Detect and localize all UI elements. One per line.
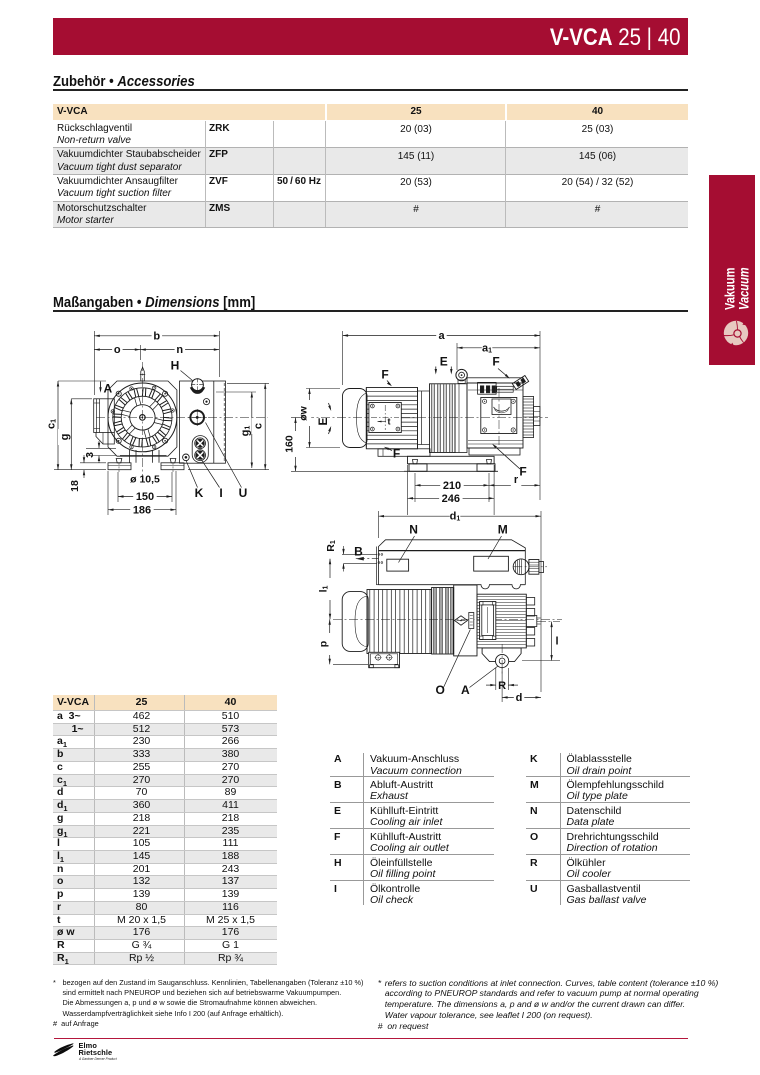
svg-text:N: N [409,523,418,537]
svg-text:øw: øw [298,405,310,420]
svg-text:l: l [556,636,559,648]
svg-text:B: B [354,544,363,558]
svg-text:160: 160 [284,435,296,453]
svg-text:Rietschle: Rietschle [79,1048,113,1057]
svg-text:A Gardner Denver Product: A Gardner Denver Product [78,1057,117,1061]
svg-text:F: F [393,447,400,461]
svg-text:R1: R1 [325,540,337,552]
svg-text:l1: l1 [318,585,330,592]
svg-text:Vakuum: Vakuum [722,268,737,310]
svg-text:E: E [316,417,330,425]
svg-text:M: M [498,523,508,537]
svg-text:E: E [440,355,448,369]
svg-text:t: t [388,417,391,427]
svg-text:U: U [239,486,248,500]
svg-text:p: p [318,641,330,647]
svg-text:H: H [171,359,180,373]
svg-text:r: r [514,474,519,486]
svg-text:I: I [219,486,222,500]
svg-text:246: 246 [442,493,460,505]
svg-text:Vacuum: Vacuum [736,267,751,310]
svg-text:A: A [461,683,470,697]
svg-text:F: F [492,355,499,369]
svg-text:18: 18 [69,480,81,492]
svg-text:186: 186 [133,504,151,516]
svg-text:210: 210 [443,480,461,492]
svg-text:a: a [438,330,445,342]
svg-text:3: 3 [84,452,96,458]
svg-text:ø 10,5: ø 10,5 [130,474,160,486]
svg-text:c: c [253,423,265,429]
svg-text:150: 150 [136,491,154,503]
svg-text:F: F [381,368,388,382]
svg-text:g: g [59,434,71,441]
svg-text:O: O [436,683,445,697]
svg-text:F: F [519,465,526,479]
svg-text:A: A [103,382,112,396]
svg-text:K: K [195,486,204,500]
svg-text:n: n [176,344,183,356]
svg-text:b: b [153,330,160,342]
svg-text:d: d [516,692,523,704]
svg-text:o: o [114,344,121,356]
